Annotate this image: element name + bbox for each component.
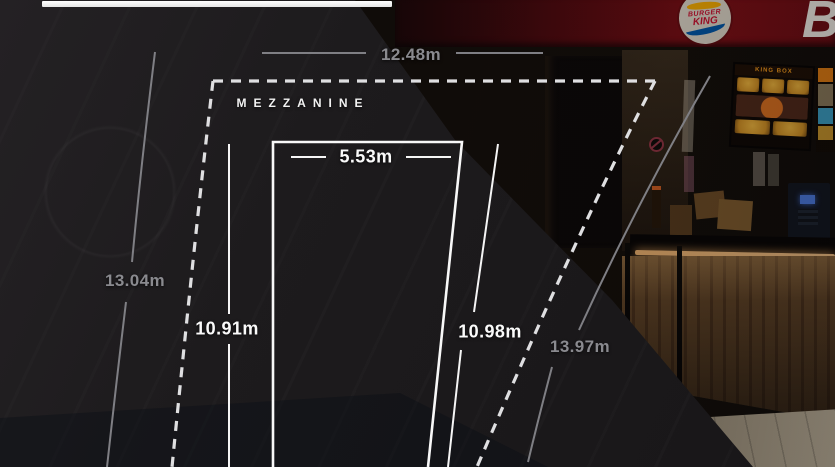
dim-label-inner-left: 10.91m — [195, 319, 258, 340]
dim-inner-right-lower — [448, 350, 461, 467]
dim-inner-right-upper — [474, 144, 498, 312]
boundary-right — [477, 81, 655, 467]
dim-label-outer-right: 13.97m — [550, 337, 610, 357]
mezzanine-dashed-boundary — [172, 81, 655, 467]
floorplan-overlay-screenshot: BURGER KING B KING BOX — [0, 0, 835, 467]
floorplan-linework — [0, 0, 835, 467]
boundary-left — [172, 81, 213, 467]
top-progress-bar — [42, 1, 392, 7]
dim-label-outer-left: 13.04m — [105, 271, 165, 291]
inner-room-walls — [273, 142, 462, 467]
gray-dimension-lines — [107, 52, 710, 467]
dim-line-outer-left-lower — [107, 302, 126, 467]
dim-line-outer-right-upper — [579, 76, 710, 330]
dim-label-top-width: 12.48m — [381, 45, 441, 65]
area-label-mezzanine: MEZZANINE — [237, 96, 370, 110]
dim-line-outer-left-upper — [132, 52, 155, 262]
dim-label-inner-width: 5.53m — [339, 147, 392, 168]
inner-room-outline — [273, 142, 462, 467]
dim-line-outer-right-lower — [528, 367, 552, 462]
dim-label-inner-right: 10.98m — [458, 322, 521, 343]
